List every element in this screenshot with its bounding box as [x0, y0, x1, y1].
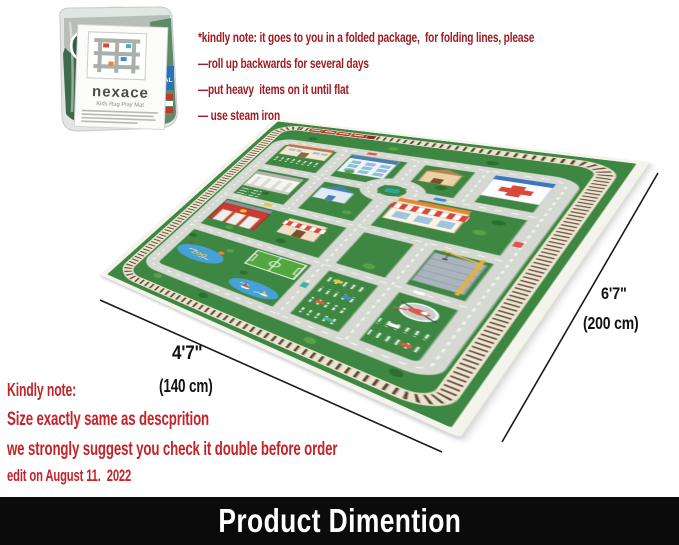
package-photo: ITAL nexace Kids Rug Play Mat — [30, 2, 190, 138]
footer-banner: Product Dimention — [0, 497, 679, 545]
care-note: *kindly note: it goes to you in a folded… — [198, 25, 646, 129]
width-label-imperial: 4'7" — [172, 343, 206, 365]
footer-title: Product Dimention — [218, 502, 461, 540]
care-note-line: *kindly note: it goes to you in a folded… — [198, 25, 534, 51]
label-map-thumbnail — [87, 32, 147, 80]
care-note-line: —roll up backwards for several days — [198, 51, 534, 77]
width-label-metric: (140 cm) — [159, 376, 230, 397]
length-label-imperial: 6'7" — [601, 284, 631, 304]
disclaimer-line: we strongly suggest you check it double … — [7, 438, 493, 461]
product-dimension-image: ITAL nexace Kids Rug Play Mat — [0, 0, 679, 545]
disclaimer-line: Size exactly same as descprition — [7, 408, 304, 431]
brand-name: nexace — [92, 83, 149, 102]
care-note-line: — use steam iron — [198, 103, 534, 129]
disclaimer-line: edit on August 11. 2022 — [7, 467, 190, 486]
package-label: nexace Kids Rug Play Mat — [74, 24, 168, 129]
length-label-metric: (200 cm) — [583, 313, 652, 334]
care-note-line: —put heavy items on it until flat — [198, 77, 534, 103]
disclaimer-heading: Kindly note: — [7, 380, 109, 401]
